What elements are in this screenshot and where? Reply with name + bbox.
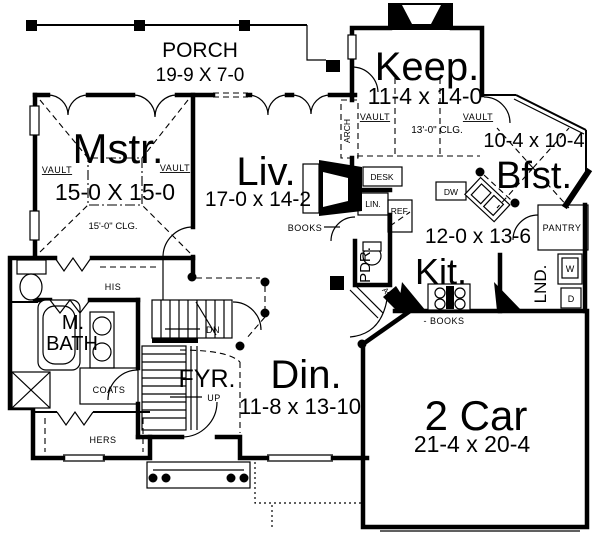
floor-plan-svg: PORCH 19-9 X 7-0 Mstr. 15-0 X 15-0 VAULT…	[0, 0, 600, 534]
din-dims: 11-8 x 13-10	[239, 394, 361, 419]
mstr-vault-left: VAULT	[42, 165, 72, 175]
dryer-label: D	[568, 294, 575, 304]
keep-vault-right: VAULT	[463, 112, 493, 122]
column-dot	[236, 342, 245, 351]
refrigerator-label: REF.	[391, 206, 409, 216]
keep-dims: 11-4 x 14-0	[368, 83, 483, 109]
porch-label: PORCH	[162, 39, 238, 62]
keep-fireplace	[388, 3, 453, 30]
floor-plan-page: PORCH 19-9 X 7-0 Mstr. 15-0 X 15-0 VAULT…	[0, 0, 600, 534]
stoop-column	[149, 474, 158, 483]
mbath-label-1: M.	[62, 312, 84, 334]
hers-closet-label: HERS	[89, 435, 116, 445]
porch-dims: 19-9 X 7-0	[156, 65, 245, 86]
liv-dims: 17-0 x 14-2	[205, 188, 311, 211]
living-fireplace	[303, 160, 362, 216]
column-dot	[476, 168, 485, 177]
dn-label: DN	[206, 325, 220, 335]
porch-post	[134, 20, 145, 31]
bfst-label: Bfst.	[496, 155, 572, 197]
powder-room-label: PDR.	[357, 247, 374, 283]
kit-label: Kit.	[415, 251, 467, 292]
washer-label: W	[566, 264, 575, 274]
mbath-label-2: BATH	[46, 333, 98, 355]
column-dot	[261, 309, 270, 318]
desk-label: DESK	[370, 172, 393, 182]
stoop-column	[227, 474, 236, 483]
coats-closet-label: COATS	[93, 385, 126, 395]
mstr-vault-right: VAULT	[160, 163, 190, 173]
toilet-tank	[17, 260, 46, 274]
column-dot	[511, 199, 520, 208]
his-closet-label: HIS	[105, 282, 122, 292]
fyr-label: FYR.	[179, 365, 236, 393]
pantry-label: PANTRY	[543, 223, 582, 233]
stoop-column	[240, 474, 249, 483]
laundry-label: LND.	[531, 265, 550, 304]
up-label: UP	[207, 393, 221, 403]
keep-vault-left: VAULT	[360, 112, 390, 122]
garage-dims: 21-4 x 20-4	[414, 431, 531, 457]
mstr-dims: 15-0 X 15-0	[55, 179, 175, 205]
stoop-column	[162, 474, 171, 483]
arch-hall-label: ARCH	[342, 119, 352, 143]
din-label: Din.	[270, 353, 341, 397]
mstr-ceiling: 15'-0" CLG.	[88, 221, 137, 232]
porch-post	[26, 20, 37, 31]
linen-label: LIN.	[365, 199, 381, 209]
keep-ceiling: 13'-0" CLG.	[411, 125, 463, 136]
column-dot	[261, 278, 270, 287]
porch-post	[239, 20, 250, 31]
column-dot	[358, 340, 367, 349]
kit-dims: 12-0 x 13-6	[425, 225, 531, 248]
dishwasher-label: DW	[444, 187, 458, 197]
bfst-dims: 10-4 x 10-4	[483, 130, 584, 152]
books-kitchen-label: - BOOKS	[423, 316, 464, 326]
toilet-bowl	[20, 274, 42, 300]
books-living-label: BOOKS	[288, 223, 323, 233]
mstr-label: Mstr.	[73, 125, 164, 172]
column-dot	[188, 273, 197, 282]
